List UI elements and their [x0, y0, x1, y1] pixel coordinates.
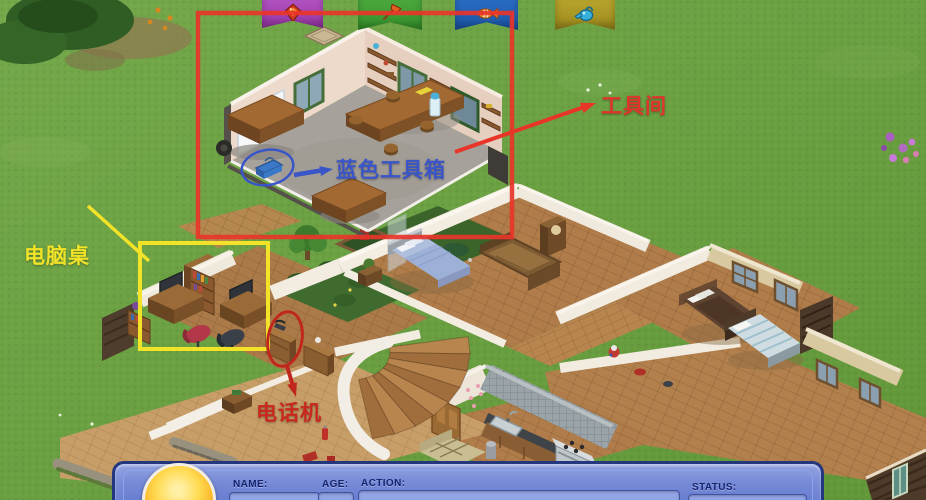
axe-icon	[378, 3, 402, 23]
tool-room-label: 工具间	[601, 90, 667, 120]
game-screen: NAME: AGE: ACTION: STATUS: 工具间 蓝色工具箱 电脑桌…	[0, 0, 926, 500]
telephone-label: 电话机	[256, 397, 322, 427]
age-value-box	[318, 492, 354, 500]
name-value-box	[229, 492, 320, 500]
gem-icon	[281, 3, 305, 23]
action-value-box	[358, 490, 680, 500]
name-label: NAME:	[233, 479, 268, 490]
blue-toolbox-label: 蓝色工具箱	[336, 154, 446, 184]
status-label: STATUS:	[692, 482, 737, 493]
watering-can-icon	[573, 3, 597, 23]
fish-icon	[475, 3, 499, 23]
action-label: ACTION:	[361, 478, 405, 489]
water-cooler[interactable]	[430, 93, 440, 117]
trash-bin[interactable]	[486, 441, 496, 459]
status-value-box	[688, 494, 807, 500]
cabin-window	[893, 464, 907, 498]
house-scene	[0, 0, 926, 500]
computer-desk-label: 电脑桌	[24, 240, 90, 270]
age-label: AGE:	[322, 479, 349, 490]
